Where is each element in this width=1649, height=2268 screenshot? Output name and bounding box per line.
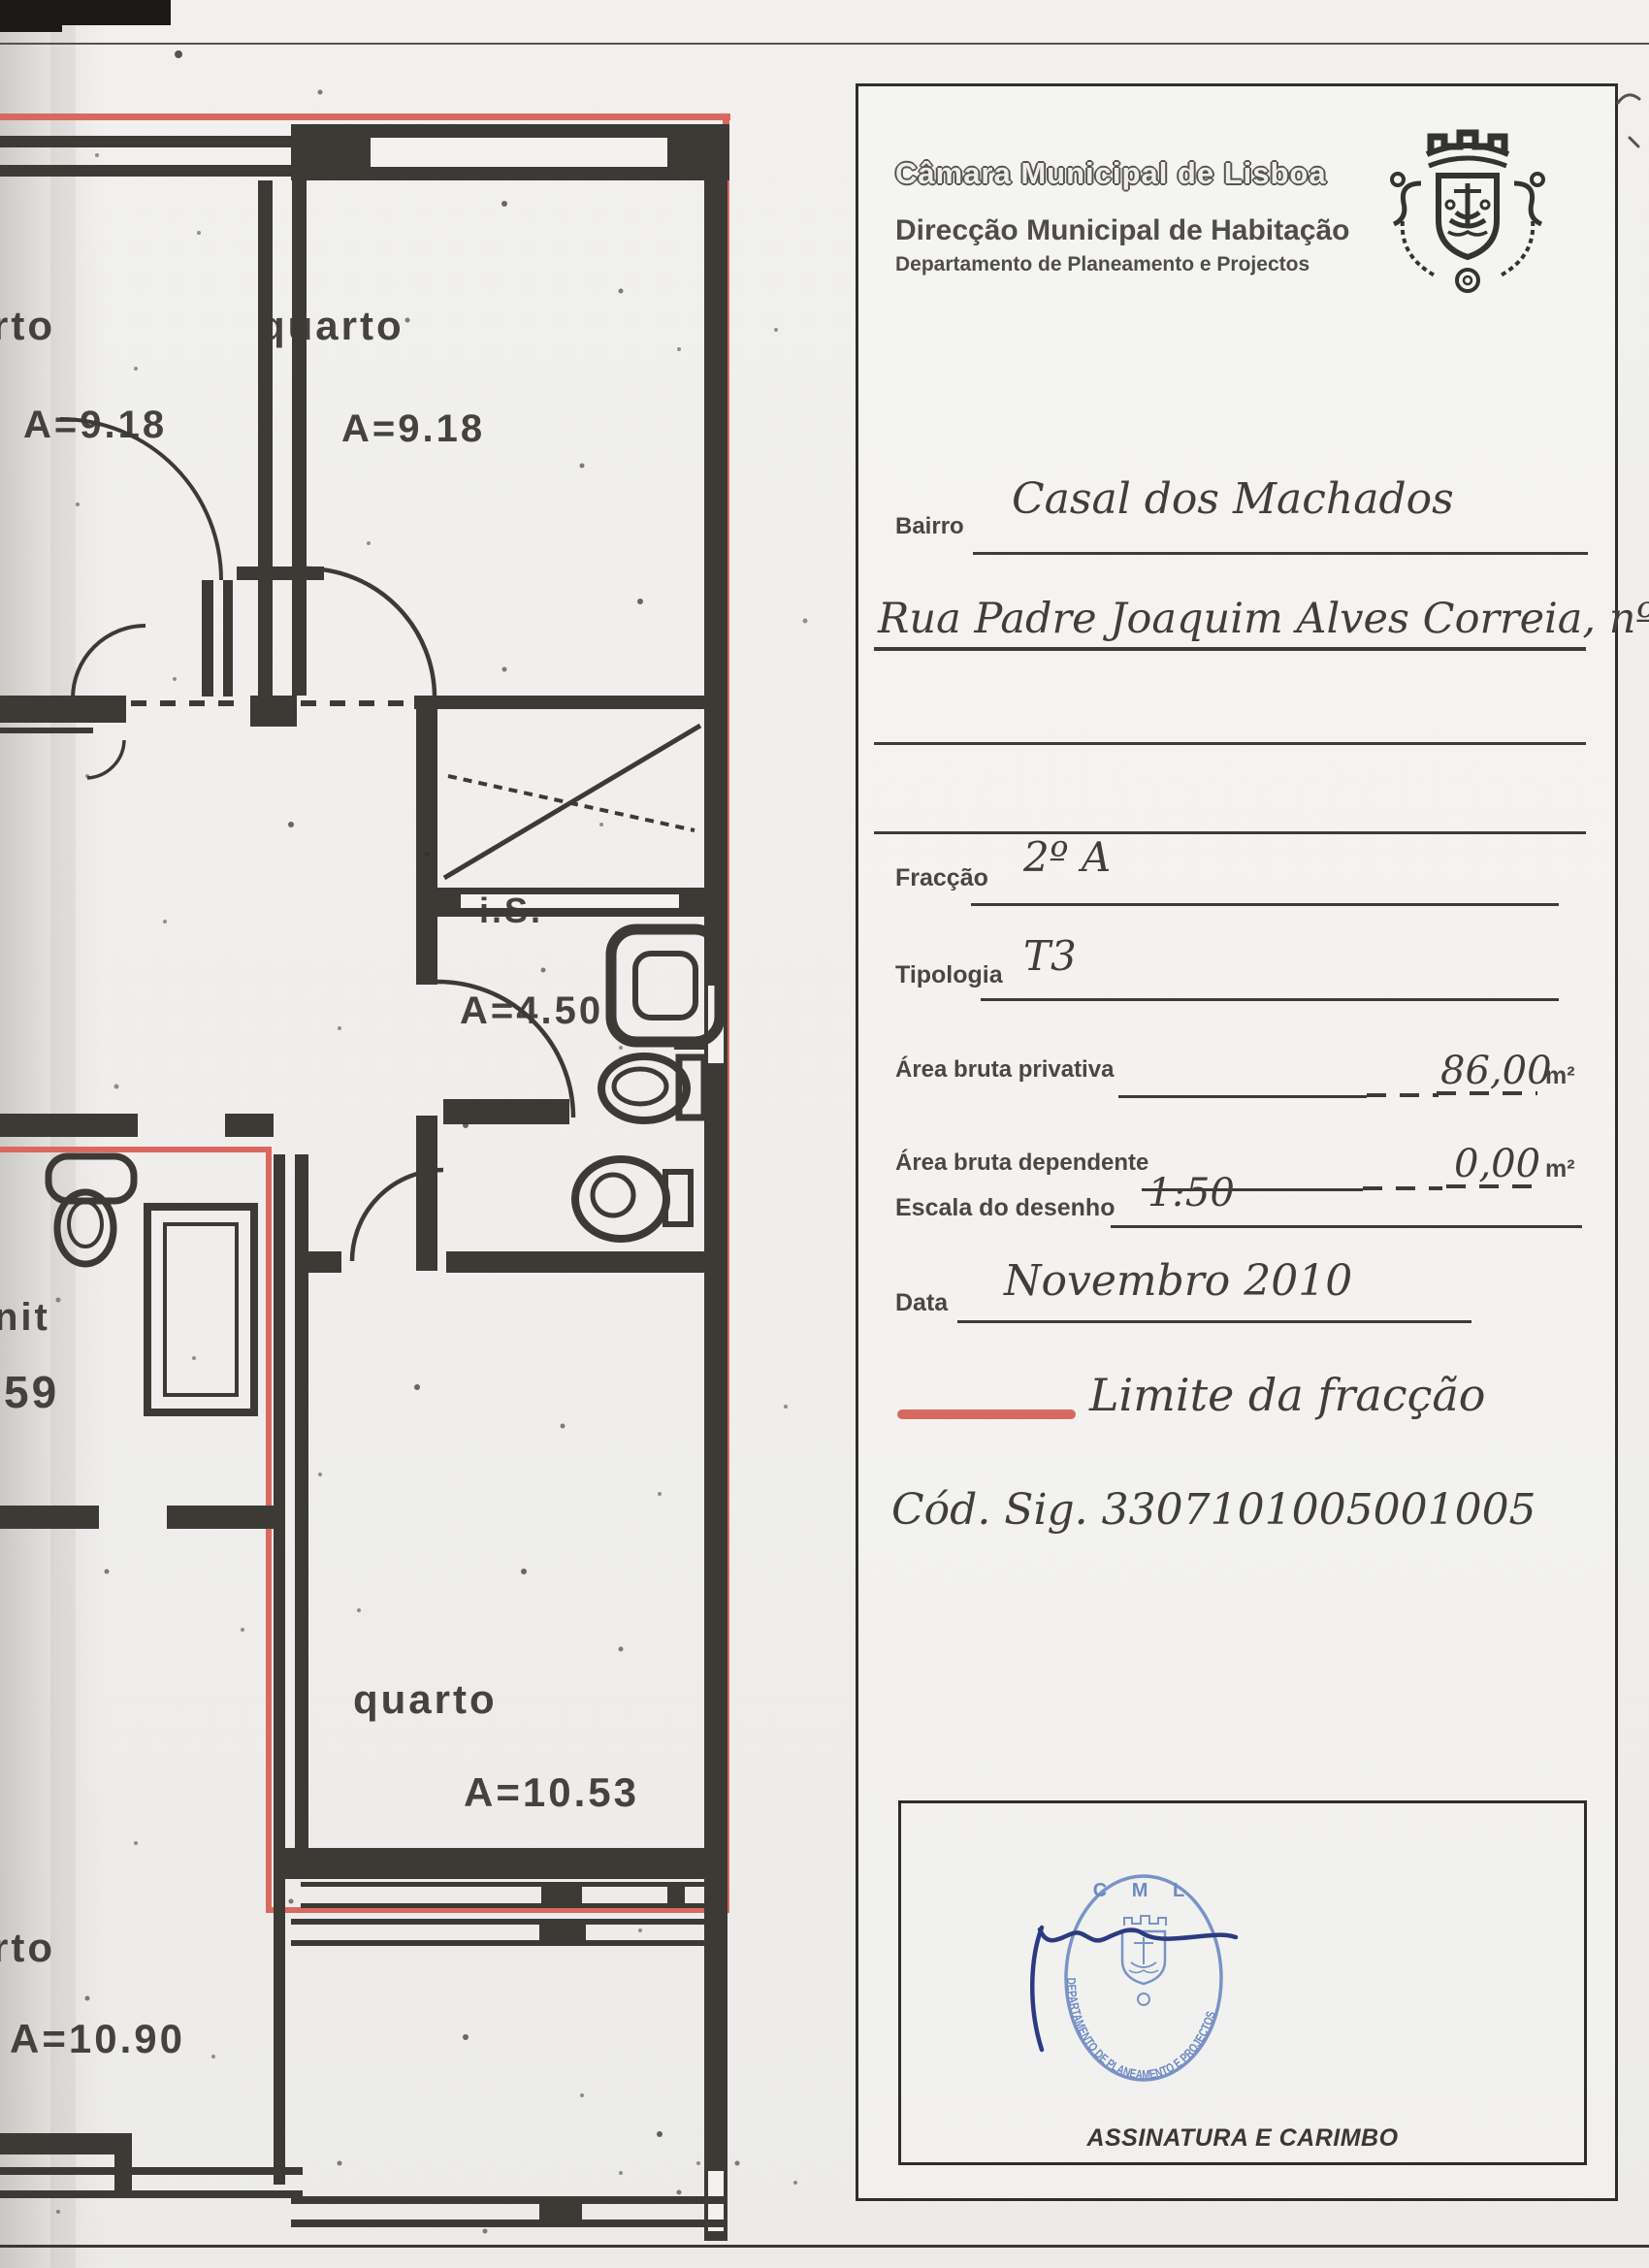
- area-privativa-unit: m²: [1545, 1062, 1575, 1090]
- fraccao-value: 2º A: [1023, 833, 1111, 881]
- form-rule: [971, 903, 1559, 906]
- escala-label: Escala do desenho: [895, 1194, 1115, 1222]
- escala-value: 1:50: [1148, 1171, 1235, 1215]
- toilet-bowl: [614, 1069, 666, 1104]
- stray-pen-marks: [1610, 85, 1649, 163]
- signature-box: DEPARTAMENTO DE PLANEAMENTO E PROJECTOS …: [898, 1800, 1587, 2165]
- door-arc: [352, 1170, 443, 1261]
- form-dashed-rule: [1367, 1093, 1439, 1097]
- door-arc: [73, 626, 145, 698]
- area-privativa-label: Área bruta privativa: [895, 1056, 1114, 1084]
- toilet-bowl: [69, 1202, 102, 1247]
- legend-label: Limite da fracção: [1089, 1369, 1486, 1421]
- form-rule: [874, 831, 1586, 834]
- form-rule: [1118, 1095, 1367, 1098]
- shower-tray-inner: [635, 954, 695, 1018]
- room-area-label: 59: [4, 1366, 59, 1418]
- area-dependente-label: Área bruta dependente: [895, 1150, 1148, 1177]
- room-label: quarto: [353, 1676, 498, 1723]
- lisbon-coat-of-arms-icon: [1371, 119, 1565, 323]
- cabinet-inner: [165, 1224, 237, 1395]
- form-rule: [874, 647, 1586, 651]
- fraccao-label: Fracção: [895, 864, 988, 892]
- scan-speckles: [56, 50, 808, 2234]
- data-value: Novembro 2010: [1004, 1256, 1352, 1306]
- room-label: rto: [0, 303, 55, 349]
- area-dependente-value: 0,00: [1454, 1142, 1540, 1186]
- form-header-direction: Direcção Municipal de Habitação: [895, 214, 1349, 247]
- closet-diagonal-dashed: [448, 776, 695, 830]
- room-area-label: A=9.18: [23, 404, 167, 447]
- address-value: Rua Padre Joaquim Alves Correia, nº 6: [878, 595, 1649, 643]
- room-label: quarto: [260, 303, 404, 349]
- cml-stamp: DEPARTAMENTO DE PLANEAMENTO E PROJECTOS …: [1022, 1832, 1265, 2123]
- bairro-value: Casal dos Machados: [1012, 474, 1454, 524]
- form-rule: [981, 998, 1559, 1001]
- area-privativa-value: 86,00: [1440, 1049, 1552, 1093]
- form-rule: [874, 742, 1586, 745]
- form-dashed-rule: [1446, 1184, 1539, 1188]
- form-header-department: Departamento de Planeamento e Projectos: [895, 253, 1309, 276]
- scanned-floor-plan-sheet: { "colors": { "wall": "#3d3a35", "bounda…: [0, 0, 1649, 2268]
- form-rule: [957, 1320, 1471, 1323]
- title-block-form: Câmara Municipal de Lisboa Direcção Muni…: [856, 83, 1618, 2201]
- bidet-bowl: [593, 1175, 633, 1215]
- plan-drawing-details: [0, 0, 854, 2268]
- form-rule: [1111, 1225, 1582, 1228]
- form-rule: [973, 552, 1588, 555]
- tipologia-value: T3: [1023, 932, 1077, 980]
- data-label: Data: [895, 1289, 948, 1317]
- door-arc: [306, 568, 435, 697]
- door-arc: [87, 740, 124, 778]
- fraction-boundary-legend-swatch: [897, 1409, 1076, 1419]
- tipologia-label: Tipologia: [895, 961, 1003, 989]
- room-area-label: A=10.90: [10, 2016, 185, 2062]
- form-dashed-rule: [1437, 1091, 1537, 1095]
- room-area-label: A=10.53: [464, 1769, 639, 1816]
- room-label: rto: [0, 1925, 55, 1971]
- room-area-label: A=9.18: [341, 407, 485, 451]
- room-label: nit: [0, 1296, 50, 1340]
- shower-tray: [611, 929, 720, 1042]
- bairro-label: Bairro: [895, 513, 964, 540]
- cod-sig: Cód. Sig. 3307101005001005: [891, 1485, 1536, 1535]
- room-label: i.S.: [479, 891, 543, 931]
- form-header-org: Câmara Municipal de Lisboa: [895, 156, 1327, 191]
- room-area-label: A=4.50: [460, 989, 603, 1033]
- bidet: [575, 1159, 666, 1239]
- stamp-top-text: C M L: [1093, 1880, 1194, 1901]
- form-dashed-rule: [1363, 1186, 1442, 1190]
- signature-box-label: ASSINATURA E CARIMBO: [901, 2124, 1584, 2153]
- area-dependente-unit: m²: [1545, 1155, 1575, 1183]
